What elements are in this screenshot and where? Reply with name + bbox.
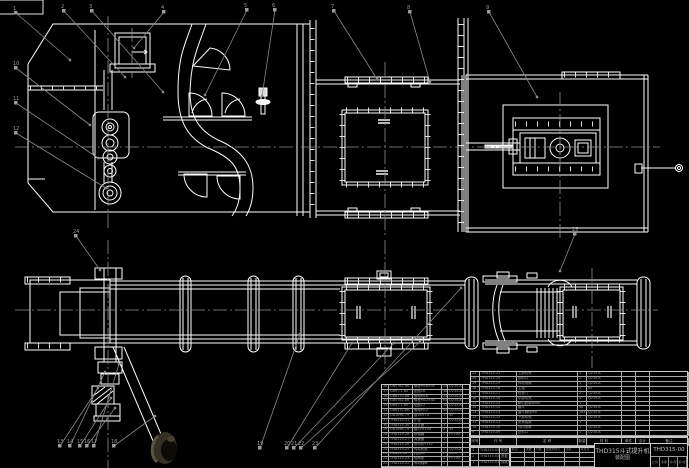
callout-label: 2 — [61, 4, 64, 10]
title-block: THD315斗式提升机 装配图 THD315-00 比例 重量 共1张 第1张 — [594, 443, 688, 468]
title-block-extra-cells: 比例 重量 共1张 第1张 — [651, 457, 687, 467]
bom-cell — [545, 462, 565, 467]
callout-label: 6 — [272, 3, 275, 9]
sheet-frame-corner — [0, 0, 43, 14]
bom-cell — [511, 462, 525, 467]
title-extra-cell: 比例 — [651, 457, 660, 467]
callout-label: 10 — [13, 61, 19, 67]
drive-unit — [520, 133, 596, 163]
bom-cell — [622, 431, 636, 436]
bom-cell: 代 号 — [480, 438, 517, 446]
title-block-name-cell: THD315斗式提升机 装配图 — [595, 444, 651, 467]
bucket — [189, 93, 212, 116]
callout-18: 18 — [111, 415, 156, 448]
bom-cell: THD315-01 — [479, 461, 500, 467]
bucket — [193, 48, 230, 70]
callout-label: 9 — [486, 5, 489, 11]
signature-grid: 标记处数分区更改文件号签名年月日 — [510, 447, 595, 468]
bom-cell: Q235-A — [587, 431, 622, 436]
bom-table-right: 21THD315-21上部机壳1Q235-A20THD315-20卸料口1Q23… — [470, 371, 688, 437]
bom-cell: 22 — [382, 462, 389, 467]
head-section — [462, 72, 683, 232]
callout-label: 1 — [13, 6, 16, 12]
bom-cell — [448, 462, 463, 467]
callout-label: 3 — [89, 4, 92, 10]
bom-cell — [650, 431, 689, 436]
callout-20: 20 — [284, 342, 353, 450]
bucket — [217, 176, 240, 199]
bom-cell: 滚动轴承 — [413, 462, 442, 467]
callout-label: 11 — [13, 96, 19, 102]
boot-section — [28, 20, 316, 218]
title-block-number-cell: THD315-00 比例 重量 共1张 第1张 — [651, 444, 687, 467]
callout-label: 15 — [77, 439, 83, 445]
bom-extra-rows: 3THD315-03机座2THD315-02底板1THD315-01观察门 — [470, 447, 510, 468]
callout-label: 5 — [244, 3, 247, 9]
callout-10: 10 — [13, 61, 91, 126]
bom-cell: 名 称 — [517, 438, 578, 446]
callout-8: 8 — [407, 5, 431, 83]
backstop-rod — [635, 164, 683, 173]
head-access-panel — [560, 287, 623, 340]
bom-cell: 9 — [471, 431, 480, 436]
stamp-blob — [152, 432, 177, 464]
callout-9: 9 — [486, 5, 538, 98]
title-extra-cell: 共1张 — [669, 457, 678, 467]
callout-label: 20 — [284, 441, 290, 447]
callout-label: 18 — [111, 439, 117, 445]
callout-6: 6 — [261, 3, 277, 97]
title-extra-cell: 第1张 — [678, 457, 687, 467]
callout-label: 21 — [291, 441, 297, 447]
callout-label: 4 — [161, 5, 164, 11]
callout-5: 5 — [204, 3, 249, 96]
callout-label: 13 — [57, 439, 63, 445]
callout-25: 25 — [559, 227, 579, 272]
callout-label: 25 — [572, 227, 578, 233]
bom-cell — [535, 462, 545, 467]
bom-cell: THD315-22 — [389, 462, 413, 467]
callout-label: 19 — [257, 441, 263, 447]
callout-label: 14 — [67, 439, 73, 445]
cad-sheet: 1234567891011121314151617181920212223242… — [0, 0, 689, 468]
callout-24: 24 — [73, 229, 101, 271]
callout-2: 2 — [61, 4, 126, 78]
callout-label: 17 — [91, 439, 97, 445]
callout-label: 22 — [298, 441, 304, 447]
callout-3: 3 — [89, 4, 164, 93]
head-plan — [465, 272, 650, 353]
bom-cell — [636, 431, 650, 436]
bom-cell: 1 — [471, 461, 479, 467]
title-extra-cell: 重量 — [660, 457, 669, 467]
bom-cell: 数量 — [578, 438, 587, 446]
bom-table-left: 38GB5782-86螺栓M16×4524Q235-A37GB97.1-85垫圈… — [381, 384, 470, 468]
boot-plan — [25, 277, 110, 350]
middle-casing — [316, 18, 468, 232]
bom-cell: 1 — [578, 431, 587, 436]
callout-11: 11 — [13, 96, 99, 159]
callout-label: 16 — [84, 439, 90, 445]
bom-cell: 序号 — [471, 438, 480, 446]
callout-label: 12 — [13, 126, 19, 132]
plan-access-panel — [342, 287, 430, 340]
drawing-type: 装配图 — [615, 456, 630, 462]
callout-label: 7 — [331, 4, 334, 10]
callout-19: 19 — [257, 333, 301, 450]
bucket — [222, 93, 245, 116]
bucket — [184, 174, 207, 197]
callout-label: 24 — [73, 229, 79, 235]
bom-cell — [525, 462, 535, 467]
bom-cell: THD315-09 — [480, 431, 517, 436]
callout-label: 23 — [312, 441, 318, 447]
flange-collar — [180, 276, 304, 352]
callout-label: 8 — [407, 5, 410, 11]
bom-cell: 进料口 — [517, 431, 578, 436]
callout-4: 4 — [133, 5, 166, 49]
drawing-number: THD315-00 — [651, 444, 687, 457]
tube-plan — [110, 271, 465, 356]
bucket-section — [163, 24, 303, 216]
bom-cell — [565, 462, 580, 467]
callout-7: 7 — [331, 4, 378, 80]
